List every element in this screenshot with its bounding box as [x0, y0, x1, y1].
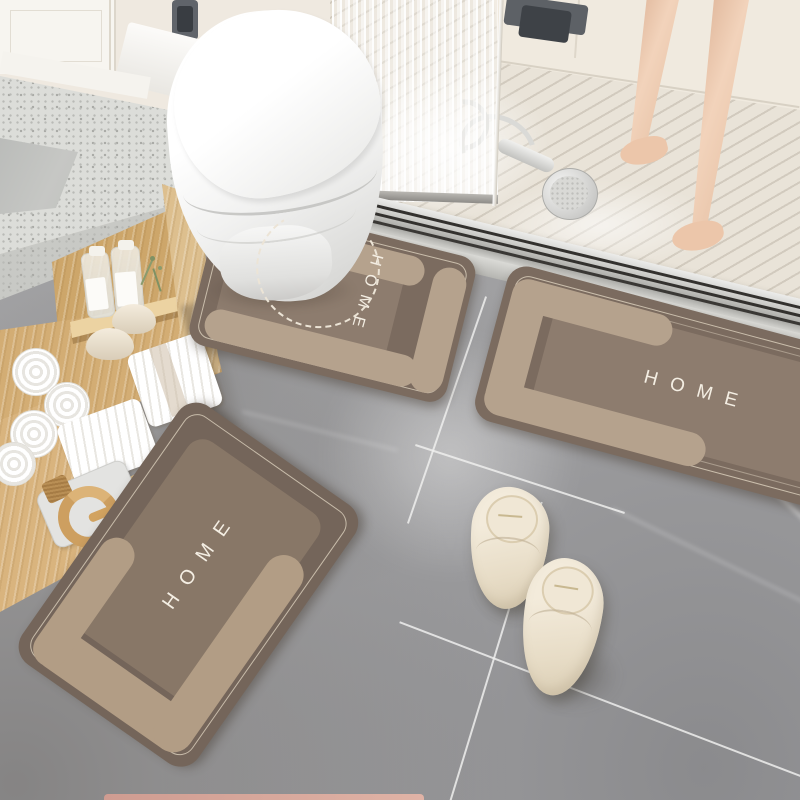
glass-clamp-inner [518, 5, 572, 44]
slipper-vamp-crease [475, 535, 541, 571]
plant-leaf [150, 256, 155, 261]
cream-jar [86, 328, 134, 360]
door-hinge-inner [177, 6, 193, 32]
pink-mat-edge [104, 794, 424, 800]
bottle-cap [89, 246, 105, 256]
shower-head-face [550, 176, 588, 210]
bottle-label [85, 277, 109, 311]
slipper-vamp-crease [526, 605, 595, 649]
plant-leaf [158, 266, 162, 270]
bottle-label [115, 271, 139, 307]
wall-grout-line [109, 0, 111, 76]
bottle-cap [118, 240, 134, 250]
bathroom-scene: HOME HOME HOME [0, 0, 800, 800]
